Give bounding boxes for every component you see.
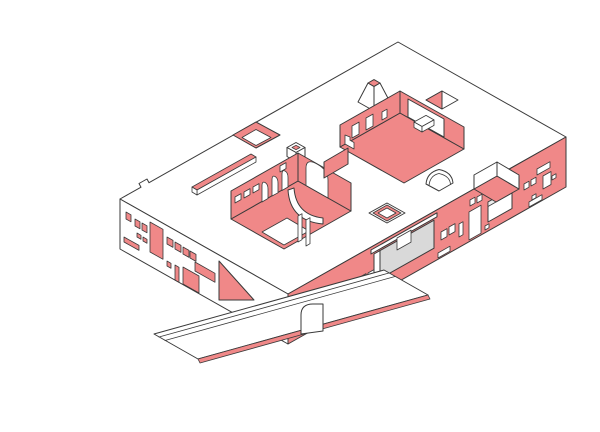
building-drawing [40, 16, 600, 416]
isometric-building-illustration: Axonometric cutaway illustration of a lo… [40, 16, 600, 416]
curved-parapet-wall [301, 304, 323, 334]
